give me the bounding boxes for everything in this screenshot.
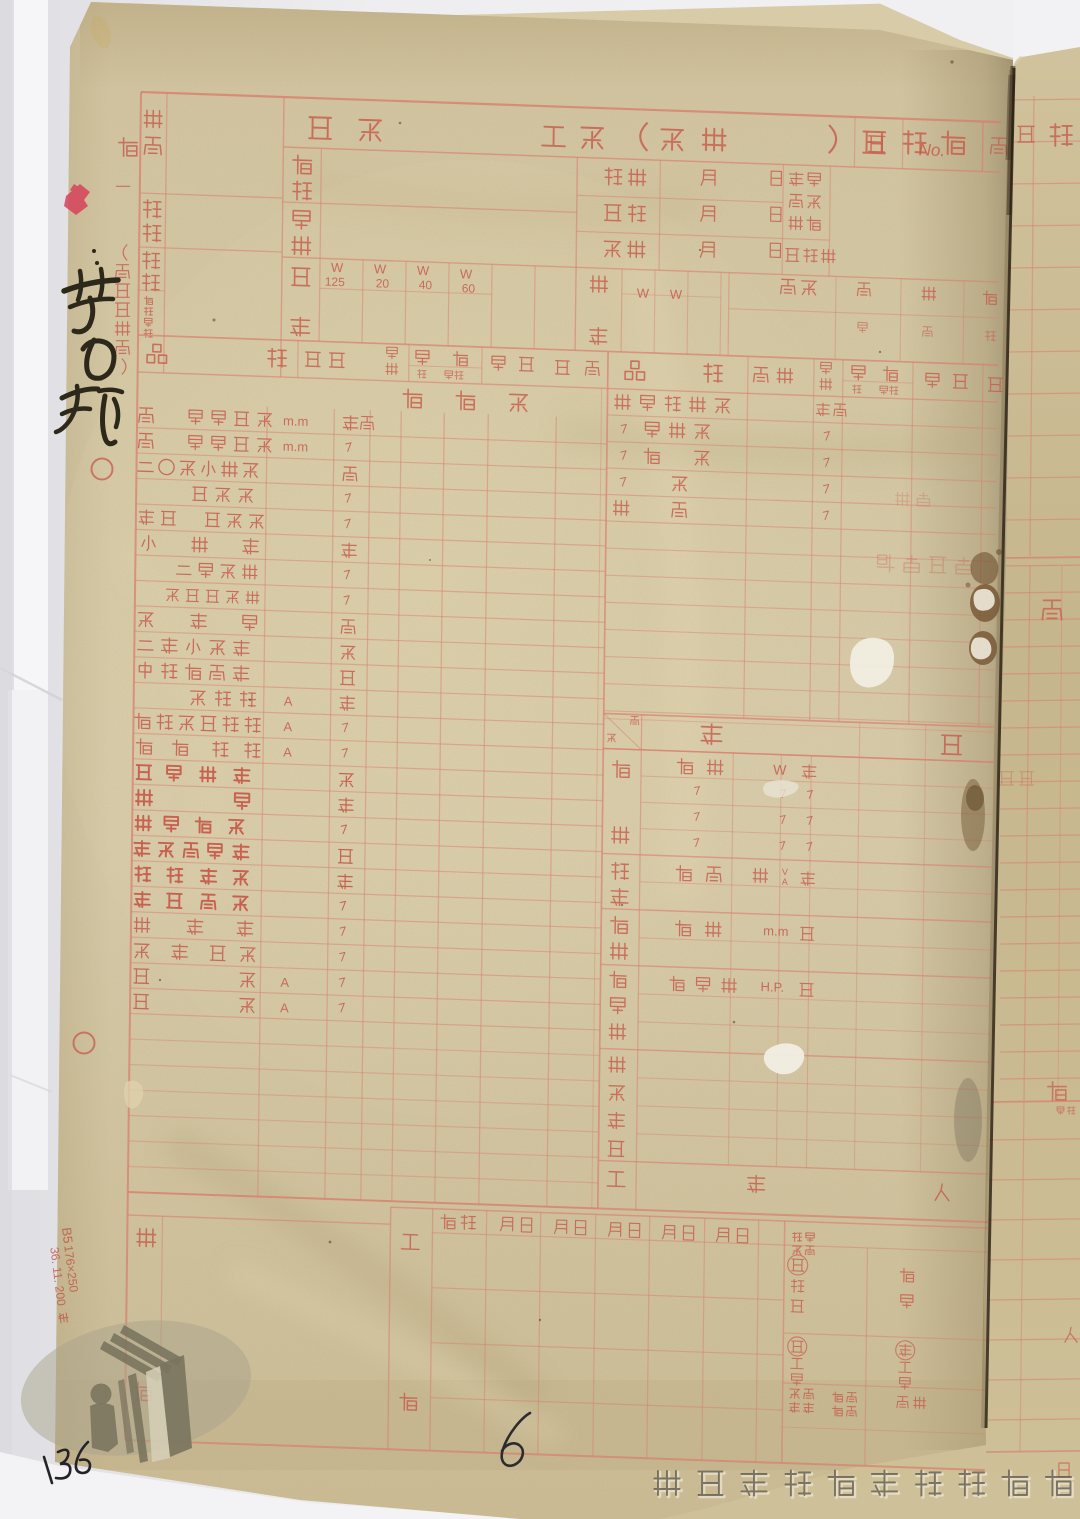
svg-text:A: A: [782, 877, 788, 887]
svg-text:V: V: [782, 867, 788, 877]
svg-text:W: W: [670, 287, 683, 302]
svg-text:No.: No.: [919, 140, 946, 160]
svg-text:W: W: [374, 261, 387, 276]
svg-text:m.m: m.m: [283, 413, 308, 429]
svg-text:m.m: m.m: [283, 439, 308, 455]
svg-text:W: W: [331, 260, 344, 275]
svg-text:B5: B5: [59, 1227, 76, 1245]
svg-text:A: A: [283, 744, 292, 759]
svg-text:W: W: [773, 761, 787, 777]
svg-text:20: 20: [376, 276, 390, 290]
svg-text:A: A: [284, 694, 293, 709]
svg-text:W: W: [460, 266, 473, 281]
svg-text:W: W: [637, 285, 650, 300]
svg-text:A: A: [280, 975, 289, 990]
svg-text:40: 40: [419, 278, 433, 292]
svg-text:H.P.: H.P.: [760, 979, 784, 995]
svg-text:125: 125: [325, 275, 346, 290]
svg-text:A: A: [283, 719, 292, 734]
svg-text:60: 60: [462, 281, 476, 295]
svg-text:W: W: [417, 263, 430, 278]
svg-text:A: A: [280, 1000, 289, 1015]
svg-text:m.m: m.m: [763, 923, 788, 939]
